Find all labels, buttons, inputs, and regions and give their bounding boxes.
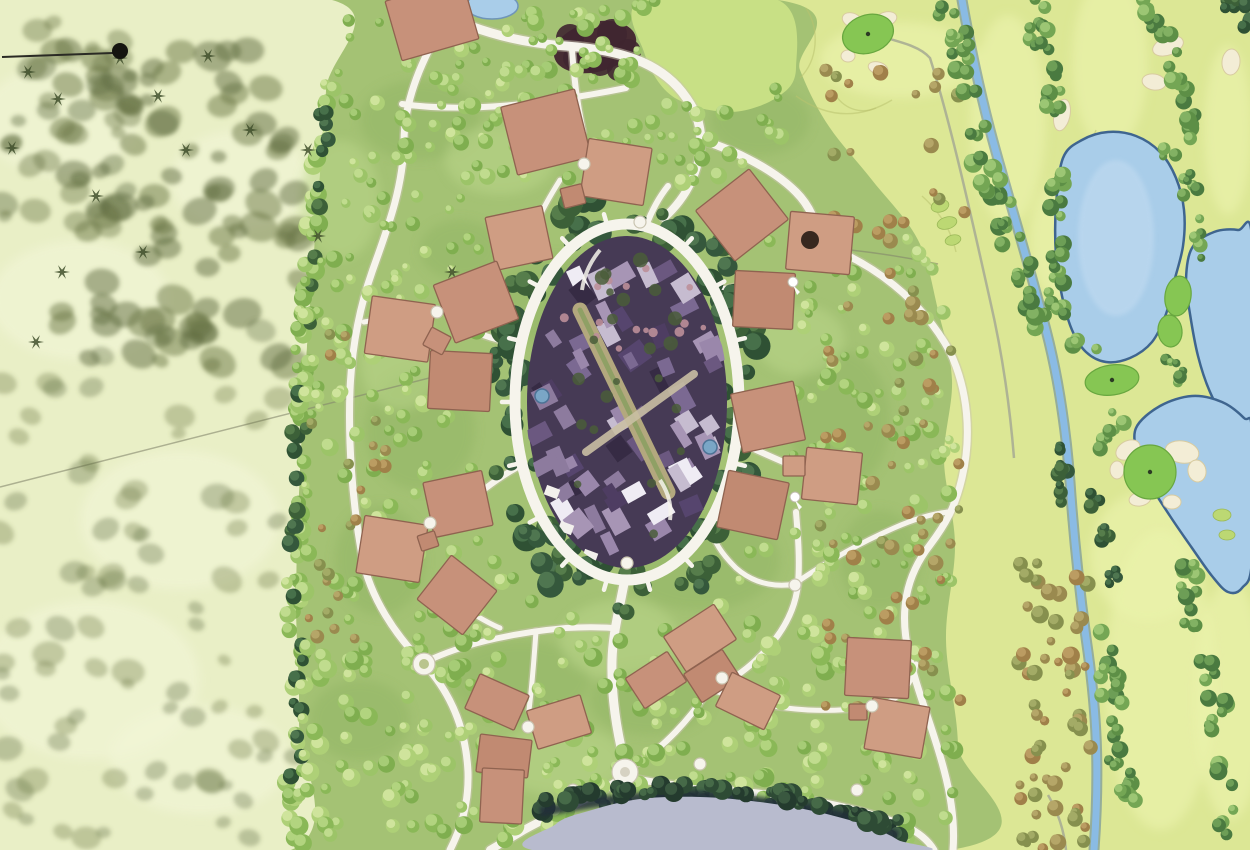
tee-box bbox=[1219, 530, 1235, 540]
villa-building bbox=[849, 704, 867, 720]
roof-feature-dot bbox=[801, 231, 819, 249]
path-node bbox=[424, 517, 436, 529]
villa-building bbox=[480, 768, 525, 824]
map-pin-icon bbox=[788, 277, 798, 287]
villa-building bbox=[428, 350, 493, 411]
villa-building bbox=[801, 447, 862, 505]
flag-pin-icon bbox=[866, 32, 870, 36]
map-pin-icon bbox=[790, 492, 800, 502]
path-node bbox=[694, 758, 706, 770]
villa-building bbox=[485, 206, 553, 271]
sand-bunker bbox=[1110, 461, 1124, 479]
villa-building bbox=[733, 270, 796, 329]
flag-pin-icon bbox=[1110, 378, 1114, 382]
villa-building bbox=[560, 184, 586, 209]
master-plan-rendering bbox=[0, 0, 1250, 850]
villa-building bbox=[580, 138, 652, 205]
path-node bbox=[716, 672, 728, 684]
villa-building bbox=[717, 470, 790, 540]
callout-dot-icon bbox=[112, 43, 128, 59]
path-node bbox=[522, 721, 534, 733]
water-feature-dot bbox=[535, 389, 549, 403]
path-node bbox=[851, 784, 863, 796]
path-node bbox=[789, 579, 801, 591]
site-plan-map bbox=[0, 0, 1250, 850]
path-node bbox=[431, 306, 443, 318]
villa-building bbox=[783, 456, 805, 476]
path-node bbox=[866, 700, 878, 712]
villa-building bbox=[730, 381, 805, 453]
path-node bbox=[621, 557, 633, 569]
villa-building bbox=[356, 515, 428, 582]
sand-bunker bbox=[1163, 495, 1181, 509]
tee-box bbox=[1213, 509, 1231, 521]
villa-building bbox=[364, 296, 435, 362]
flag-pin-icon bbox=[1148, 470, 1152, 474]
path-node bbox=[578, 158, 590, 170]
villa-building bbox=[845, 637, 912, 698]
villa-building bbox=[786, 211, 855, 274]
path-node bbox=[634, 216, 646, 228]
water-feature-dot bbox=[703, 440, 717, 454]
